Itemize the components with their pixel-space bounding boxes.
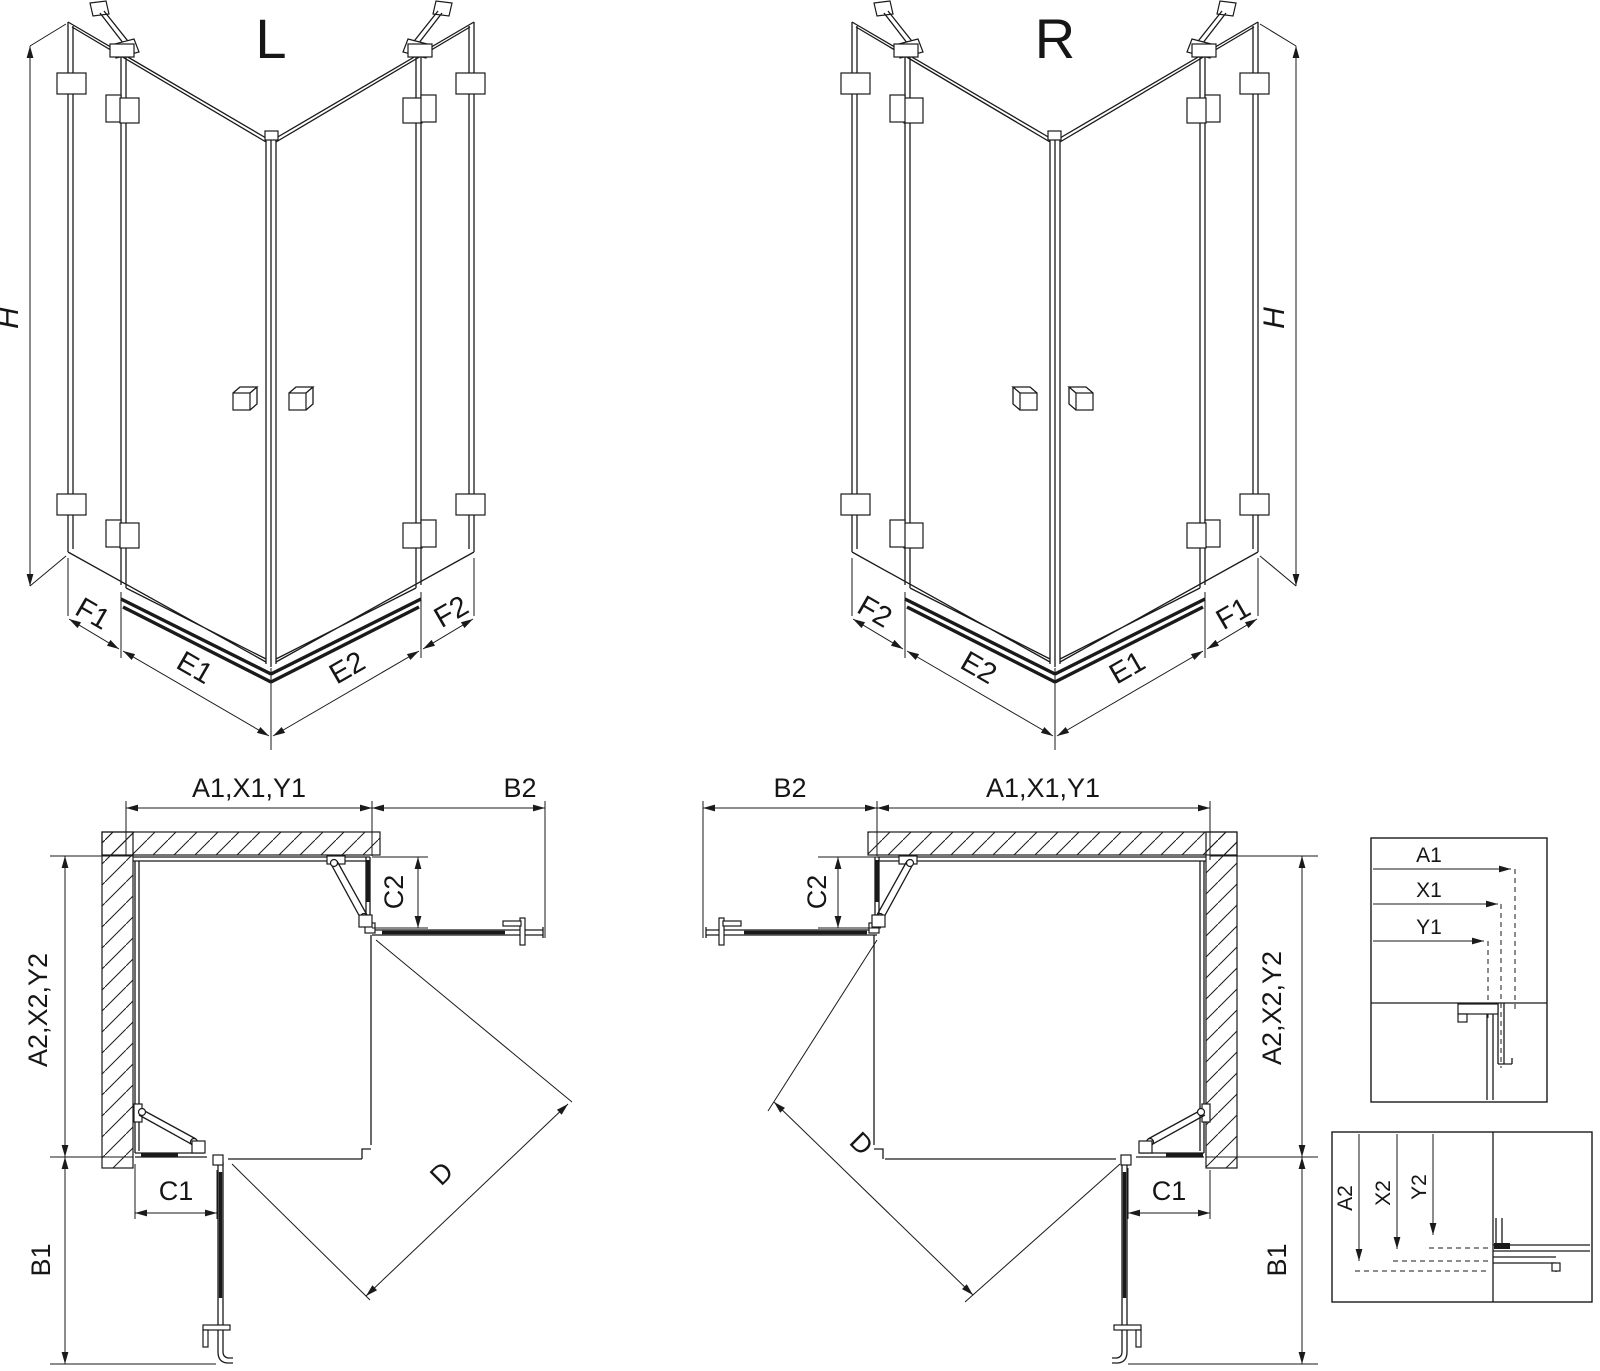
wall-bracket-icon xyxy=(1240,73,1269,94)
perspective-view-right: R xyxy=(841,1,1296,750)
dimension-label-h: H xyxy=(1258,307,1291,329)
top-clamp-icon xyxy=(894,44,918,57)
dimension-label-b1: B1 xyxy=(26,1243,56,1276)
dimension-label-b1: B1 xyxy=(1262,1243,1292,1276)
plan-view-right: B2 A1,X1,Y1 C2 A2,X2,Y2 B1 C1 D xyxy=(703,773,1318,1364)
corner-profile-cap xyxy=(1048,131,1061,140)
view-label-l: L xyxy=(255,7,286,70)
dimension-label-b2: B2 xyxy=(503,773,536,803)
top-clamp-icon xyxy=(1192,44,1216,57)
perspective-view-left: L xyxy=(0,1,485,750)
open-door-bottom xyxy=(1112,1104,1210,1363)
detail-label-a1: A1 xyxy=(1416,844,1442,867)
door-closed-plane-lines xyxy=(874,935,1116,1159)
detail-frame xyxy=(1332,1132,1592,1302)
door-handle-icon xyxy=(1013,387,1093,410)
wall-section-top xyxy=(102,832,380,855)
wall-bracket-icon xyxy=(841,73,870,94)
handle-icon xyxy=(723,921,741,926)
profile-section xyxy=(1458,1003,1512,1100)
wall-section-top xyxy=(868,832,1237,855)
wall-bracket-icon xyxy=(57,73,86,94)
corner-profile-cap xyxy=(265,131,278,140)
wall-section-side xyxy=(102,832,133,1168)
swing-arm-icon xyxy=(134,1104,205,1153)
dimension-label-a2: A2,X2,Y2 xyxy=(23,953,53,1067)
dimension-label-a1: A1,X1,Y1 xyxy=(192,773,306,803)
shower-enclosure-technical-drawing: L xyxy=(0,0,1600,1371)
swing-arm-icon xyxy=(327,856,372,927)
dimension-label-f2: F2 xyxy=(852,590,897,635)
dimensions-l: H F1 E1 E2 F2 xyxy=(0,24,474,750)
detail-label-a2: A2 xyxy=(1334,1185,1357,1211)
detail-view-bottom: A2 X2 Y2 xyxy=(1332,1132,1592,1302)
detail-frame xyxy=(1371,838,1547,1102)
view-label-r: R xyxy=(1035,7,1075,70)
door-closed-plane-lines xyxy=(228,935,371,1159)
handle-icon xyxy=(503,921,521,926)
drawing-canvas: L xyxy=(0,0,1600,1371)
detail-label-y1: Y1 xyxy=(1416,916,1442,939)
open-door-right xyxy=(327,856,543,945)
wall-bracket-icon xyxy=(841,494,870,515)
dimension-label-f2: F2 xyxy=(429,590,474,635)
dimension-label-c1: C1 xyxy=(159,1176,194,1206)
handle-icon xyxy=(1114,1325,1141,1330)
top-clamp-icon xyxy=(408,44,432,57)
door-pivot xyxy=(213,1155,223,1165)
plan-view-left: A1,X1,Y1 B2 C2 A2,X2,Y2 B1 C1 D xyxy=(23,773,572,1364)
handle-icon xyxy=(1136,1330,1141,1347)
dimension-d xyxy=(366,1104,568,1296)
dimension-label-f1: F1 xyxy=(70,592,115,637)
dimension-label-a2: A2,X2,Y2 xyxy=(1257,951,1287,1065)
handle-icon xyxy=(203,1325,230,1330)
dimension-label-h: H xyxy=(0,307,25,329)
top-clamp-icon xyxy=(110,44,134,57)
open-door-bottom xyxy=(134,1104,233,1363)
wall-section-side xyxy=(1206,832,1237,1168)
wall-bracket-icon xyxy=(57,494,86,515)
dimension-label-c2: C2 xyxy=(802,875,832,910)
dimension-label-c1: C1 xyxy=(1152,1176,1187,1206)
detail-label-x2: X2 xyxy=(1372,1180,1395,1206)
wall-bracket-icon xyxy=(456,494,485,515)
detail-view-top: A1 X1 Y1 xyxy=(1371,838,1547,1102)
tray-and-glass xyxy=(133,857,371,1159)
door-pivot xyxy=(1121,1155,1131,1165)
dimension-label-b2: B2 xyxy=(773,773,806,803)
tray-and-glass xyxy=(874,857,1206,1159)
detail-label-x1: X1 xyxy=(1416,879,1442,902)
wall-bracket-icon xyxy=(456,73,485,94)
dimension-label-a1: A1,X1,Y1 xyxy=(986,773,1100,803)
wall-bracket-icon xyxy=(1240,494,1269,515)
dimension-label-d: D xyxy=(424,1156,459,1191)
handle-icon xyxy=(203,1330,208,1347)
dimension-label-c2: C2 xyxy=(379,875,409,910)
door-handle-icon xyxy=(233,387,313,410)
detail-label-y2: Y2 xyxy=(1408,1174,1431,1200)
profile-section xyxy=(1493,1218,1590,1272)
dimension-label-f1: F1 xyxy=(1211,592,1256,637)
